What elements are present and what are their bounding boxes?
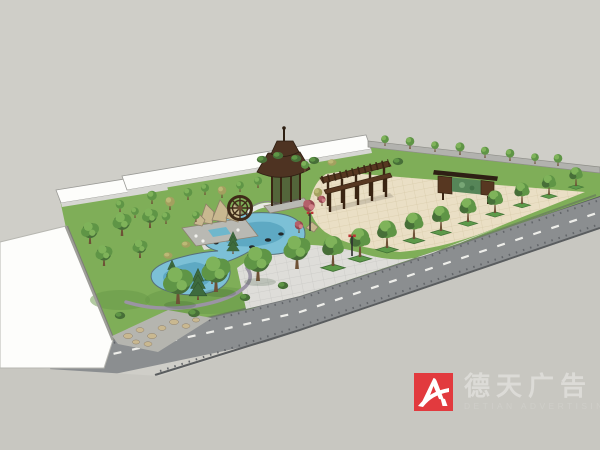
landscape-render: 德天广告 DETIAN ADVERTISING	[0, 0, 600, 450]
brand-name-english: DETIAN ADVERTISING	[464, 401, 600, 411]
watermark-logo: 德天广告 DETIAN ADVERTISING	[414, 373, 600, 411]
brand-name-chinese: 德天广告	[464, 373, 600, 399]
pavilion-finial	[282, 126, 286, 130]
water-wheel	[229, 197, 252, 220]
brand-wordmark: 德天广告 DETIAN ADVERTISING	[464, 373, 600, 411]
pond-rock	[265, 238, 271, 242]
brand-logo-icon	[414, 373, 453, 411]
